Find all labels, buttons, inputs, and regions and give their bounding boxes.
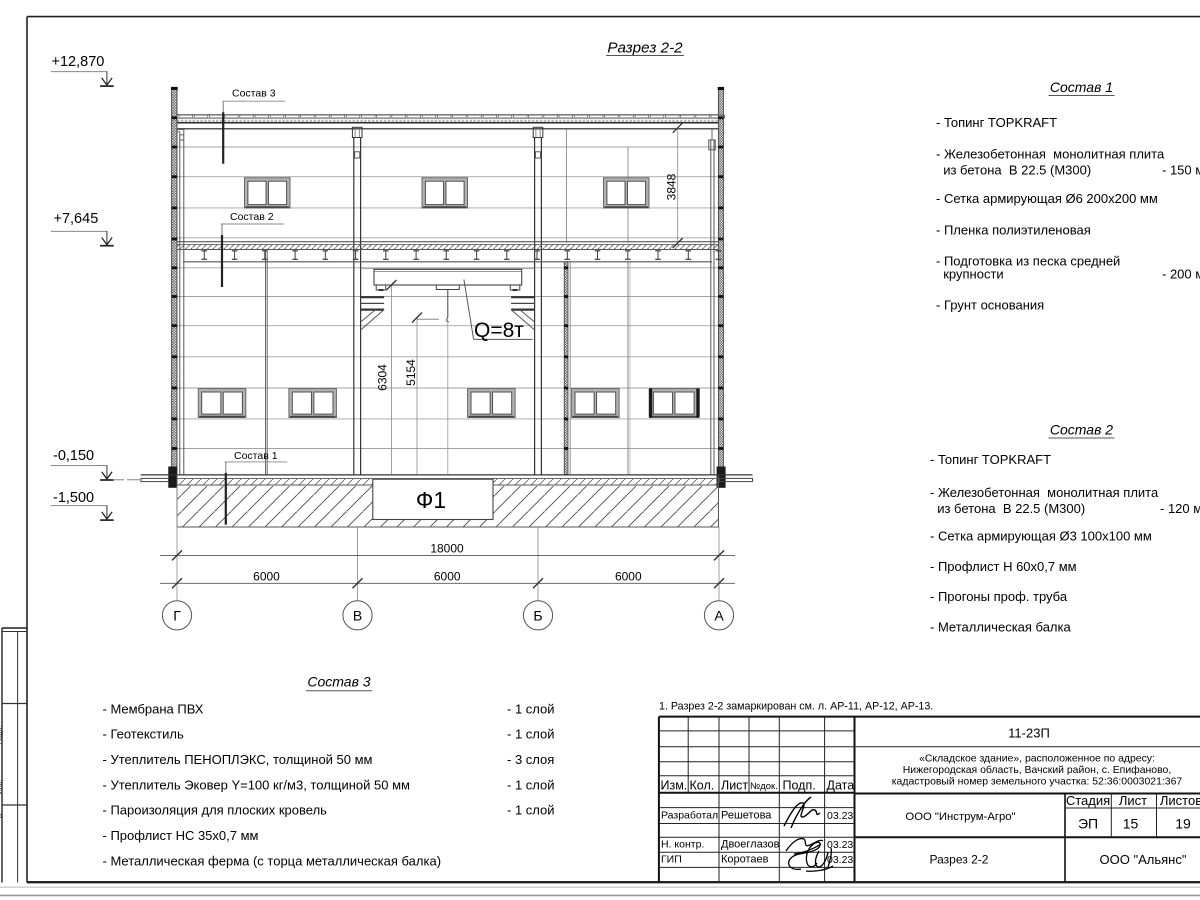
svg-text:крупности: крупности [936, 267, 1004, 282]
svg-text:В: В [0, 813, 4, 818]
svg-text:- Грунт основания: - Грунт основания [936, 298, 1044, 313]
svg-text:Б: Б [533, 607, 542, 623]
svg-text:- 150 м: - 150 м [1162, 163, 1200, 178]
svg-text:- 120 м: - 120 м [1160, 501, 1200, 516]
svg-text:- Профлист НС 35х0,7 мм: - Профлист НС 35х0,7 мм [103, 828, 259, 843]
svg-text:Лист: Лист [1119, 793, 1147, 808]
svg-text:- Мембрана ПВХ: - Мембрана ПВХ [103, 701, 204, 716]
svg-text:Н. контр.: Н. контр. [661, 839, 704, 851]
svg-text:- 200 м: - 200 м [1162, 267, 1200, 282]
svg-text:Подп.: Подп. [0, 726, 4, 745]
svg-text:Состав 2: Состав 2 [230, 211, 274, 223]
svg-text:- Сетка армирующая Ø3 100х100: - Сетка армирующая Ø3 100х100 мм [930, 529, 1152, 544]
svg-text:Состав 1: Состав 1 [234, 450, 278, 462]
svg-text:ГИП: ГИП [661, 854, 682, 866]
svg-text:- Топинг TOPKRAFT: - Топинг TOPKRAFT [936, 115, 1057, 130]
svg-text:Инв.: Инв. [0, 780, 4, 795]
svg-text:- Профлист Н 60х0,7 мм: - Профлист Н 60х0,7 мм [930, 559, 1077, 574]
svg-text:6000: 6000 [253, 570, 280, 584]
svg-text:6000: 6000 [615, 570, 642, 584]
svg-text:+7,645: +7,645 [54, 211, 99, 227]
svg-text:03.23: 03.23 [827, 810, 853, 822]
svg-text:18000: 18000 [430, 542, 464, 556]
svg-text:ООО "Альянс": ООО "Альянс" [1100, 852, 1187, 867]
svg-text:- Пароизоляция для плоских кро: - Пароизоляция для плоских кровель [103, 803, 328, 818]
svg-text:- Утеплитель Эковер Y=100 кг/м: - Утеплитель Эковер Y=100 кг/м3, толщино… [103, 777, 411, 792]
svg-text:6304: 6304 [375, 364, 389, 391]
svg-text:- Утеплитель ПЕНОПЛЭКС, толщин: - Утеплитель ПЕНОПЛЭКС, толщиной 50 мм [103, 752, 373, 767]
svg-text:Стадия: Стадия [1066, 793, 1110, 808]
svg-text:- 1 слой: - 1 слой [507, 727, 555, 742]
svg-text:19: 19 [1175, 816, 1191, 832]
svg-text:Нижегородская область, Вачский: Нижегородская область, Вачский район, с.… [903, 764, 1172, 776]
svg-text:А: А [714, 607, 724, 623]
svg-text:Коротаев: Коротаев [721, 854, 769, 866]
svg-text:- Пленка полиэтиленовая: - Пленка полиэтиленовая [936, 222, 1091, 237]
svg-text:Q=8т: Q=8т [474, 319, 524, 342]
svg-text:6000: 6000 [434, 570, 461, 584]
svg-text:- Прогоны проф. труба: - Прогоны проф. труба [930, 589, 1068, 604]
svg-text:- Геотекстиль: - Геотекстиль [103, 727, 184, 742]
svg-text:ООО "Инструм-Агро": ООО "Инструм-Агро" [905, 811, 1015, 823]
svg-text:Листов: Листов [1160, 793, 1200, 808]
svg-text:Состав 2: Состав 2 [1050, 422, 1113, 438]
svg-text:-1,500: -1,500 [53, 490, 94, 506]
svg-text:- 1 слой: - 1 слой [507, 803, 555, 818]
svg-text:Разрез 2-2: Разрез 2-2 [930, 853, 989, 867]
svg-text:Разрез 2-2: Разрез 2-2 [607, 40, 683, 57]
svg-text:Решетова: Решетова [721, 810, 772, 822]
svg-text:Разработал: Разработал [661, 810, 718, 822]
svg-text:№док.: №док. [750, 781, 778, 792]
svg-text:кадастровый номер земельного у: кадастровый номер земельного участка: 52… [892, 776, 1183, 787]
svg-text:- 1 слой: - 1 слой [507, 701, 555, 716]
svg-text:- 1 слой: - 1 слой [507, 777, 555, 792]
svg-text:из бетона В 22.5 (М300): из бетона В 22.5 (М300) [930, 501, 1085, 516]
svg-text:«Складское здание», расположен: «Складское здание», расположенное по адр… [919, 753, 1155, 764]
svg-text:Состав 3: Состав 3 [232, 87, 276, 99]
svg-text:Дата: Дата [827, 779, 855, 793]
svg-text:В: В [353, 607, 362, 623]
svg-text:1. Разрез 2-2 замаркирован см.: 1. Разрез 2-2 замаркирован см. л. АР-11,… [659, 701, 933, 713]
svg-text:Двоеглазов: Двоеглазов [721, 839, 780, 851]
svg-text:- Железобетонная монолитная п: - Железобетонная монолитная плита [930, 485, 1159, 500]
svg-text:ЭП: ЭП [1078, 816, 1098, 832]
svg-text:- Сетка армирующая Ø6 200х200: - Сетка армирующая Ø6 200х200 мм [936, 191, 1158, 206]
svg-text:Ф1: Ф1 [416, 487, 446, 513]
svg-text:- Железобетонная монолитная п: - Железобетонная монолитная плита [936, 147, 1165, 162]
svg-text:5154: 5154 [404, 359, 418, 386]
svg-text:Подп.: Подп. [783, 779, 816, 793]
svg-text:+12,870: +12,870 [52, 54, 105, 70]
svg-text:- Металлическая ферма (с торца: - Металлическая ферма (с торца металличе… [103, 853, 442, 868]
svg-text:Г: Г [173, 607, 181, 623]
svg-text:Изм.: Изм. [661, 779, 688, 793]
svg-text:3848: 3848 [664, 173, 678, 200]
svg-text:Лист: Лист [721, 779, 748, 793]
svg-text:Состав 1: Состав 1 [1050, 79, 1113, 95]
svg-text:- 3 слоя: - 3 слоя [507, 752, 554, 767]
svg-text:- Топинг TOPKRAFT: - Топинг TOPKRAFT [930, 452, 1051, 467]
svg-text:из бетона В 22.5 (М300): из бетона В 22.5 (М300) [936, 163, 1091, 178]
svg-text:11-23П: 11-23П [1008, 726, 1050, 741]
svg-text:- Металлическая балка: - Металлическая балка [930, 620, 1071, 635]
svg-text:15: 15 [1123, 816, 1139, 832]
svg-text:-0,150: -0,150 [53, 448, 94, 464]
svg-text:Кол.: Кол. [690, 779, 715, 793]
svg-text:Состав 3: Состав 3 [307, 674, 370, 690]
